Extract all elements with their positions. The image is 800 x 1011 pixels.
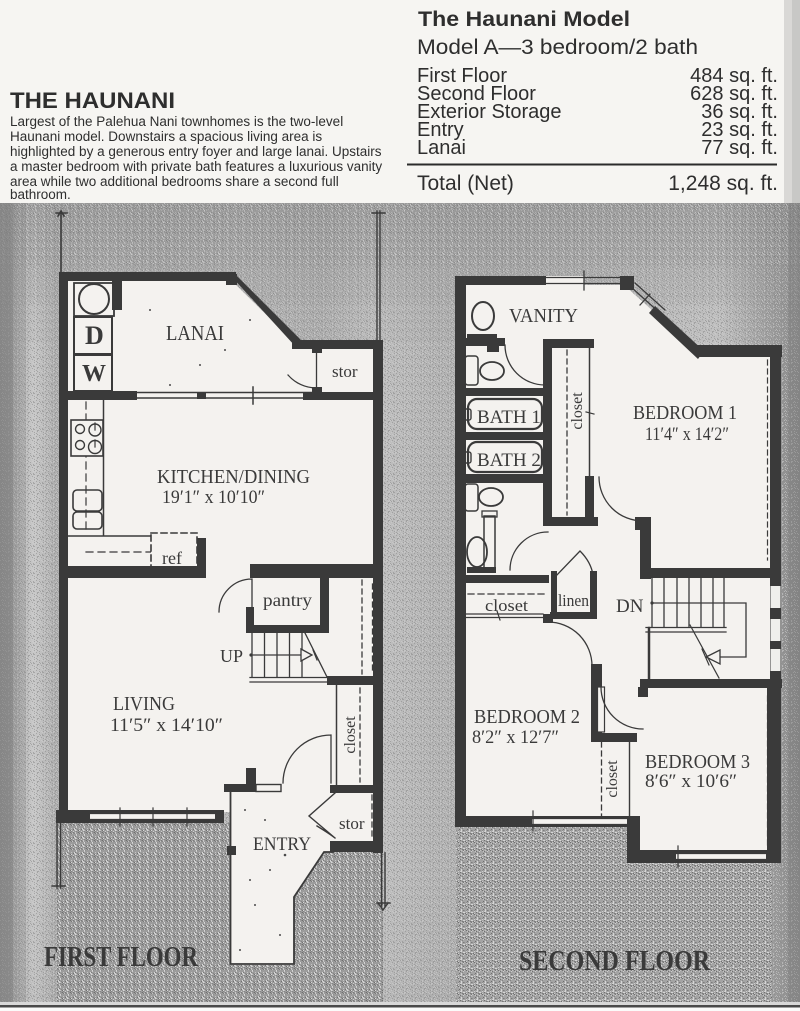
svg-text:BEDROOM 1: BEDROOM 1 xyxy=(633,402,737,424)
svg-text:closet: closet xyxy=(485,596,528,615)
svg-text:linen: linen xyxy=(558,591,589,610)
svg-text:BEDROOM 2: BEDROOM 2 xyxy=(474,706,580,728)
svg-text:a master bedroom with private: a master bedroom with private bath featu… xyxy=(10,159,382,174)
svg-text:Largest of the Palehua Nani to: Largest of the Palehua Nani townhomes is… xyxy=(10,114,343,129)
svg-text:SECOND FLOOR: SECOND FLOOR xyxy=(519,946,711,977)
svg-text:DN: DN xyxy=(616,596,644,617)
svg-text:19′1″ x 10′10″: 19′1″ x 10′10″ xyxy=(162,487,265,508)
svg-text:LANAI: LANAI xyxy=(166,321,224,345)
svg-text:highlighted by a generous entr: highlighted by a generous entry foyer an… xyxy=(10,144,382,159)
svg-text:pantry: pantry xyxy=(263,590,312,610)
svg-text:Haunani model. Downstairs a sp: Haunani model. Downstairs a spacious liv… xyxy=(10,129,322,144)
svg-text:8′2″ x 12′7″: 8′2″ x 12′7″ xyxy=(472,727,559,748)
svg-text:11′4″ x 14′2″: 11′4″ x 14′2″ xyxy=(645,424,729,445)
svg-text:Total (Net): Total (Net) xyxy=(417,172,514,195)
svg-text:stor: stor xyxy=(332,362,358,381)
svg-text:stor: stor xyxy=(339,814,365,833)
svg-text:closet: closet xyxy=(342,716,359,754)
svg-text:77 sq. ft.: 77 sq. ft. xyxy=(701,137,778,159)
svg-text:Model A—3 bedroom/2 bath: Model A—3 bedroom/2 bath xyxy=(417,36,698,59)
svg-text:LIVING: LIVING xyxy=(113,693,175,715)
svg-text:11′5″ x 14′10″: 11′5″ x 14′10″ xyxy=(110,715,223,736)
svg-text:Lanai: Lanai xyxy=(417,137,466,159)
svg-text:closet: closet xyxy=(604,760,621,798)
svg-text:VANITY: VANITY xyxy=(509,305,578,327)
svg-text:THE HAUNANI: THE HAUNANI xyxy=(10,88,175,113)
svg-text:1,248 sq. ft.: 1,248 sq. ft. xyxy=(668,172,778,195)
svg-text:BATH 1: BATH 1 xyxy=(477,407,541,428)
svg-text:ENTRY: ENTRY xyxy=(253,834,311,855)
svg-text:FIRST FLOOR: FIRST FLOOR xyxy=(44,942,199,973)
svg-text:The Haunani Model: The Haunani Model xyxy=(418,7,630,31)
svg-text:closet: closet xyxy=(569,392,586,430)
svg-text:8′6″ x 10′6″: 8′6″ x 10′6″ xyxy=(645,771,737,792)
svg-text:W: W xyxy=(82,361,106,387)
svg-text:D: D xyxy=(85,321,104,350)
svg-text:BATH 2: BATH 2 xyxy=(477,450,541,471)
svg-text:UP: UP xyxy=(220,646,243,666)
svg-text:ref: ref xyxy=(162,548,182,568)
svg-text:BEDROOM 3: BEDROOM 3 xyxy=(645,751,750,773)
svg-text:KITCHEN/DINING: KITCHEN/DINING xyxy=(157,466,310,488)
svg-text:bathroom.: bathroom. xyxy=(10,187,71,202)
